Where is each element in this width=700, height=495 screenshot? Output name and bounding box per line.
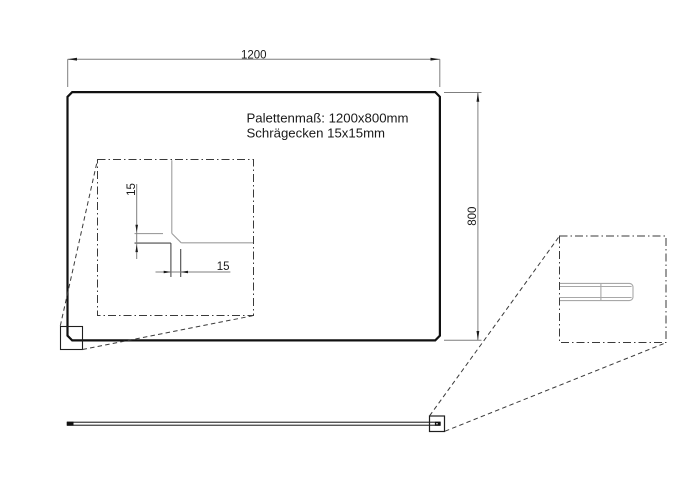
- svg-text:15: 15: [217, 261, 230, 273]
- svg-text:15: 15: [126, 183, 138, 196]
- svg-text:Schrägecken 15x15mm: Schrägecken 15x15mm: [247, 125, 386, 140]
- svg-text:Palettenmaß: 1200x800mm: Palettenmaß: 1200x800mm: [247, 110, 409, 125]
- svg-text:800: 800: [467, 207, 479, 226]
- svg-text:1200: 1200: [241, 49, 267, 61]
